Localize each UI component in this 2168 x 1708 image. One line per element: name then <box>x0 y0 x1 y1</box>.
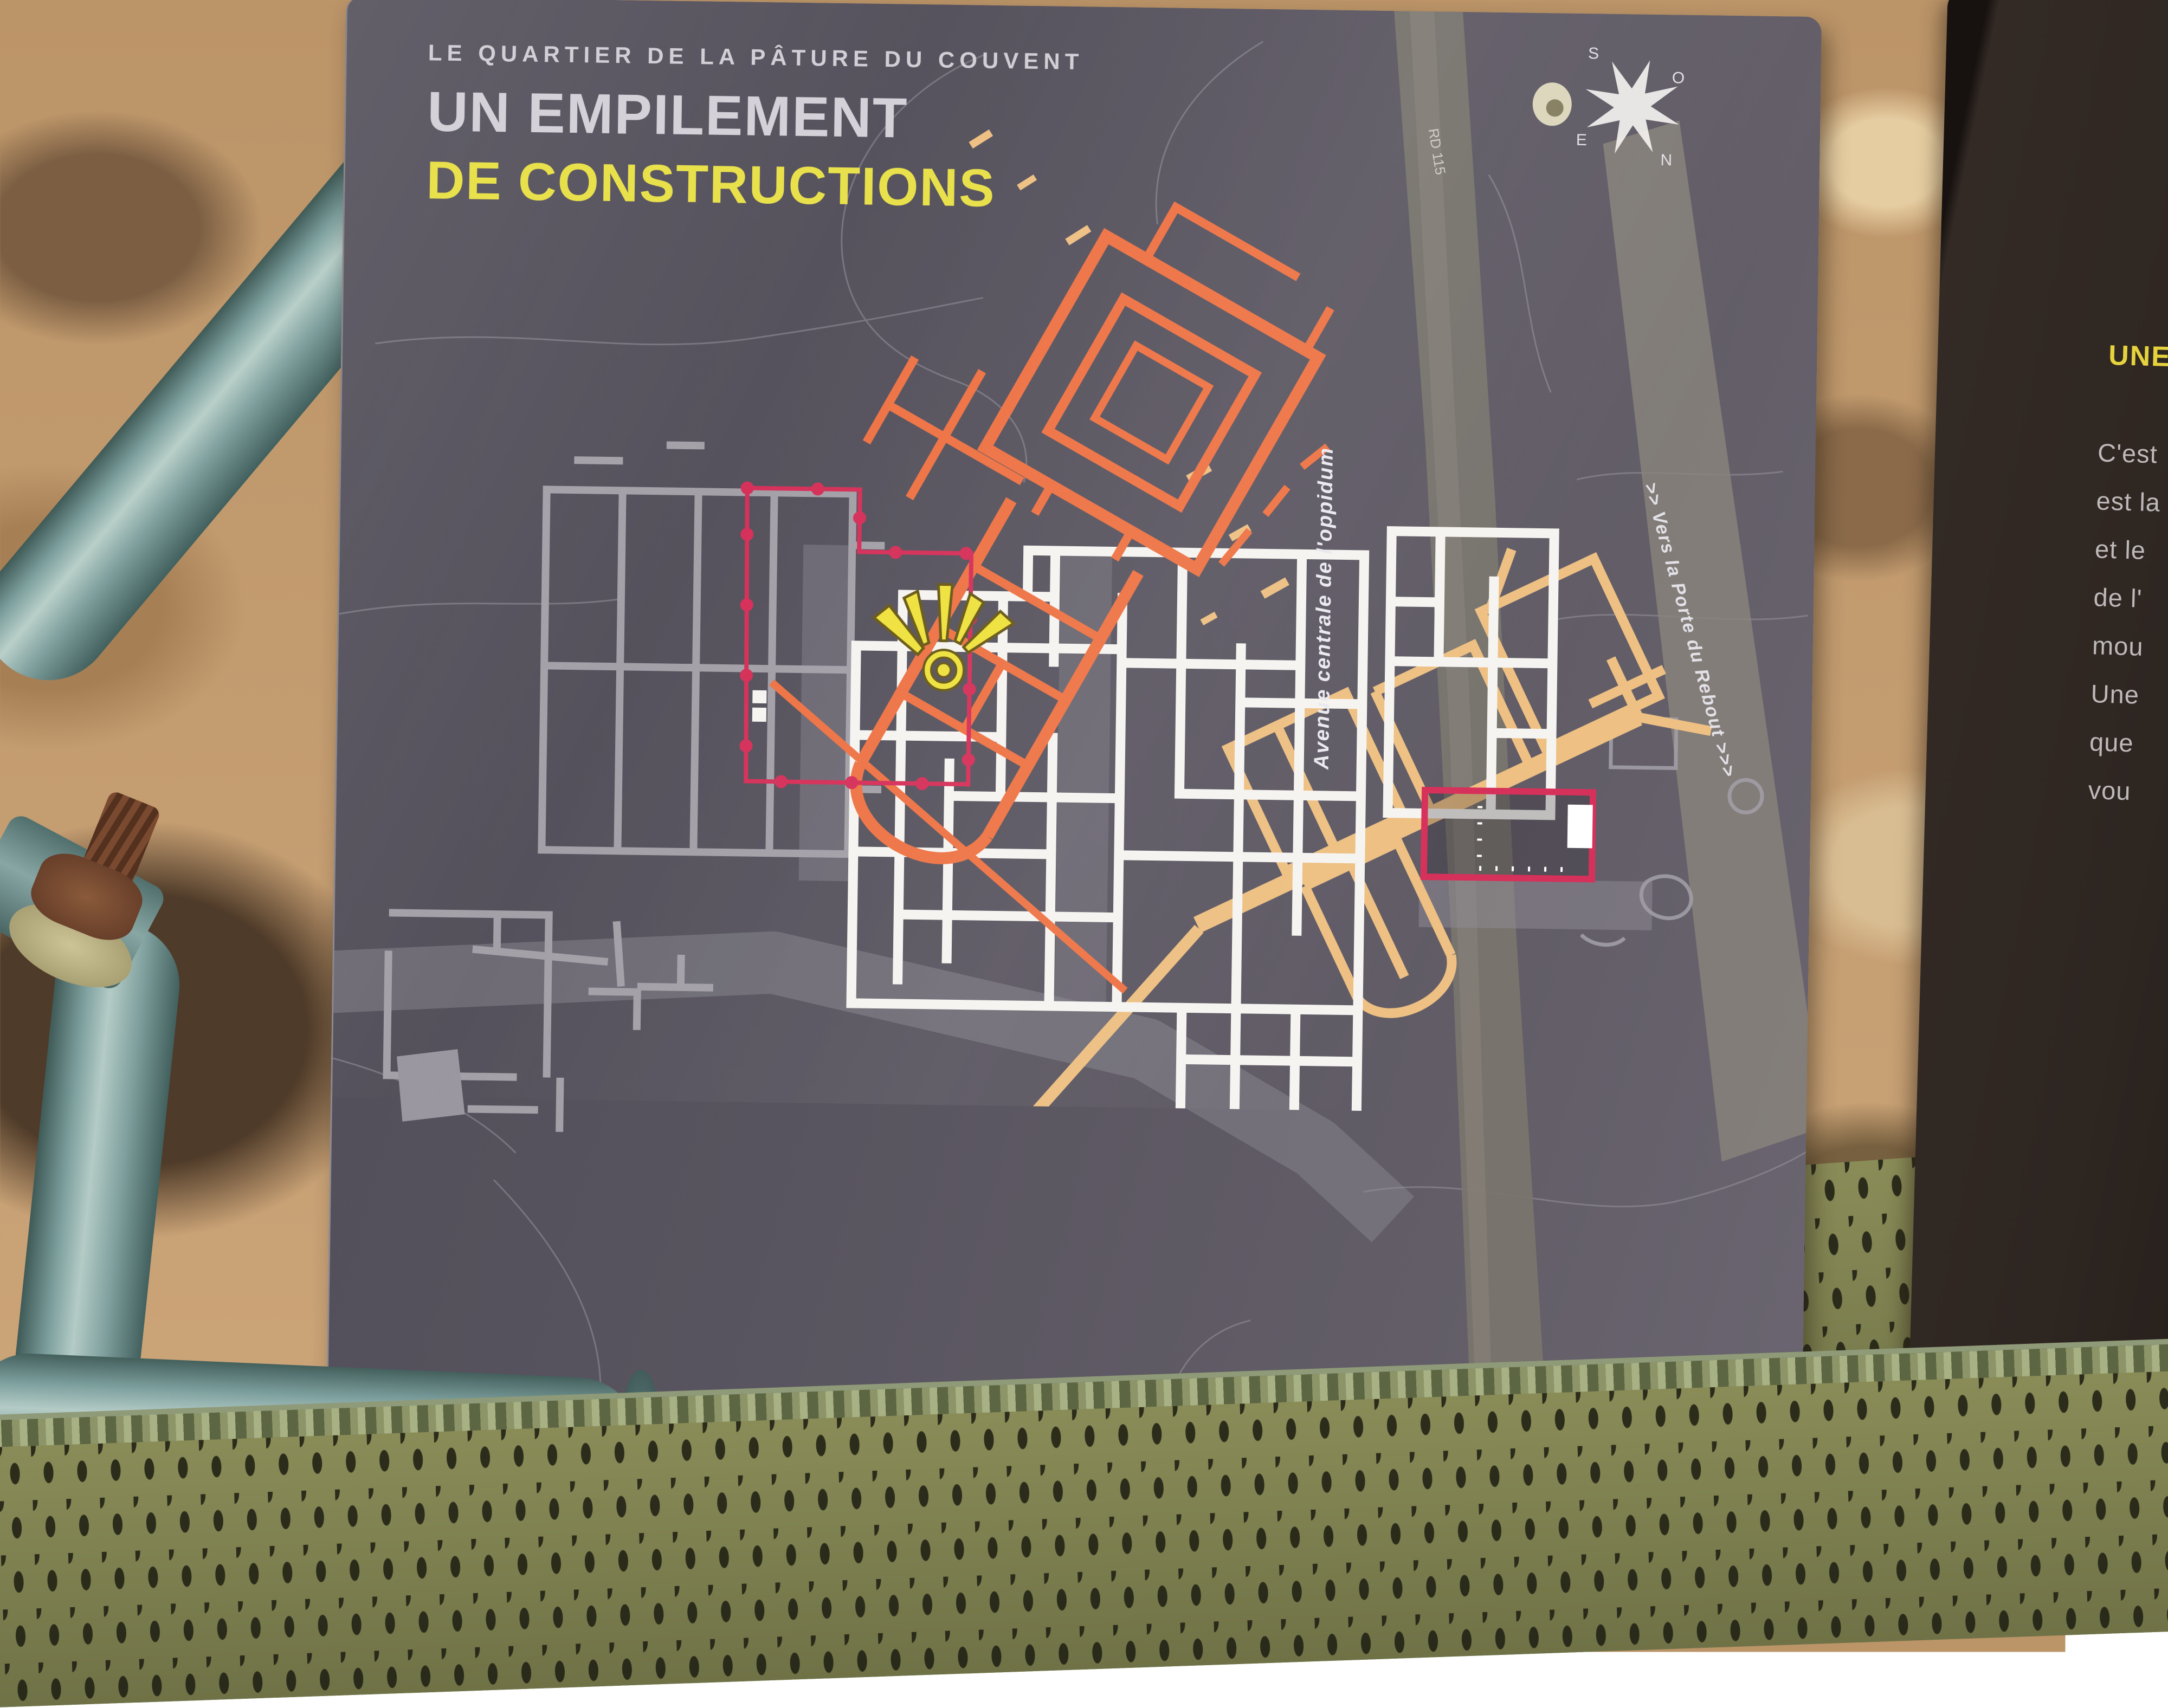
side-panel-line: Une <box>2090 678 2168 733</box>
legend-label: Vestiges médiévaux non visibles <box>1537 1214 1757 1233</box>
avenue-label: Avenue centrale de l'oppidum <box>1311 447 1338 771</box>
legend-label: Vestiges antiques non visibles <box>1536 1274 1741 1292</box>
side-panel-line: est la <box>2095 486 2168 540</box>
legend-swatch-antique-hidden <box>1487 1270 1522 1292</box>
white-tick-1 <box>752 690 766 703</box>
sign-panel-main: Bassin S O E N Avenue centrale de l'oppi… <box>326 0 1822 1431</box>
sign-title: UN EMPILEMENT <box>427 80 1083 153</box>
legend-row: Vestiges antiques non visibles <box>1487 1268 1763 1298</box>
scale-bar: 0 20 m <box>601 1319 833 1371</box>
legend-row: Abri de protection des vestiges <box>1487 1298 1763 1328</box>
compass-e: E <box>1576 131 1587 149</box>
legend-swatch-medieval-visible <box>1488 1181 1524 1203</box>
scale-end: 20 m <box>791 1319 833 1341</box>
compass-o: O <box>1672 69 1685 87</box>
side-panel-title: UNE <box>2108 339 2168 373</box>
side-panel-paragraph: C'est est la et le de l' mou Une que vou <box>2087 437 2168 829</box>
legend-row: Vestiges médiévaux visibles <box>1488 1179 1764 1208</box>
legend-label: Vestiges médiévaux visibles <box>1538 1185 1727 1203</box>
title-block: LE QUARTIER DE LA PÂTURE DU COUVENT UN E… <box>426 40 1084 220</box>
sign-panel-side: UNE C'est est la et le de l' mou Une que… <box>1909 0 2168 1390</box>
side-panel-line: que <box>2089 727 2168 781</box>
scale-start: 0 <box>602 1331 612 1353</box>
side-panel-line: et le <box>2094 534 2168 588</box>
legend-row: Vestiges médiévaux non visibles <box>1488 1208 1764 1238</box>
legend-swatch-medieval-hidden <box>1488 1211 1524 1233</box>
bassin-label: Bassin <box>1333 1154 1390 1174</box>
legend-swatch-shelter <box>1487 1299 1523 1323</box>
map-legend: Vestiges médiévaux visibles Vestiges méd… <box>1472 1165 1776 1338</box>
antique-hidden-blob <box>396 1049 466 1123</box>
legend-row: Vestiges antiques visibles <box>1488 1238 1764 1268</box>
legend-label: Abri de protection des vestiges <box>1537 1304 1747 1322</box>
sign-subtitle: DE CONSTRUCTIONS <box>426 150 1082 220</box>
legend-label: Vestiges antiques visibles <box>1537 1244 1712 1263</box>
side-panel-line: C'est <box>2096 437 2168 492</box>
compass-s: S <box>1588 44 1599 62</box>
side-panel-line: de l' <box>2093 582 2168 637</box>
side-panel-line: mou <box>2092 630 2168 685</box>
legend-swatch-antique-visible <box>1488 1240 1523 1263</box>
side-panel-line: vou <box>2087 775 2168 830</box>
compass-n: N <box>1660 151 1672 169</box>
white-tick-2 <box>752 708 766 722</box>
photo-of-site-sign: { "sign": { "kicker": "LE QUARTIER DE LA… <box>0 0 2168 1626</box>
